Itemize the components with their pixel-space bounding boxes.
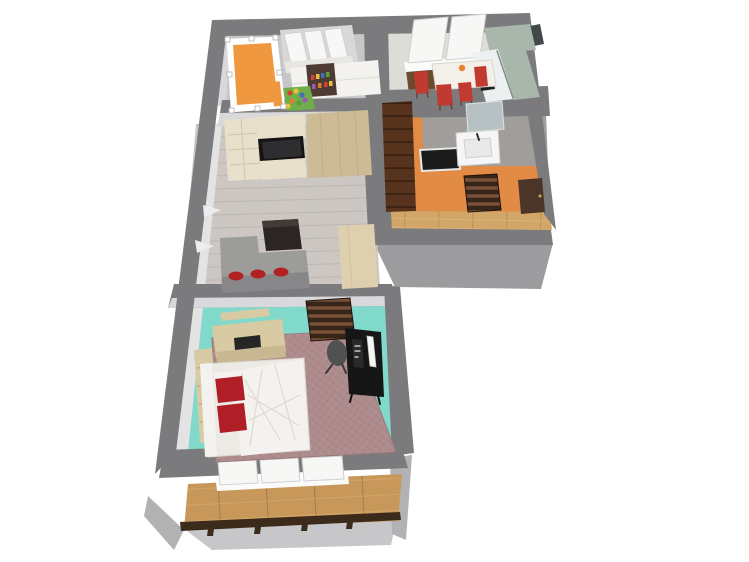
handle-s[interactable] [255, 106, 260, 111]
pc-tower[interactable] [352, 339, 364, 368]
toy-block [318, 83, 322, 88]
side-table[interactable] [338, 224, 378, 289]
handle-e[interactable] [277, 70, 282, 75]
bathtub[interactable] [420, 148, 460, 171]
dining-chair-3[interactable] [458, 82, 473, 102]
railing-post-2 [254, 527, 261, 534]
bed-pillow-2 [217, 403, 247, 433]
balcony-left-face [144, 496, 184, 550]
toy [287, 90, 292, 95]
hall-doormat[interactable] [464, 174, 501, 212]
toy-block [324, 82, 328, 87]
washbasin-bowl [464, 138, 492, 158]
handle-w[interactable] [227, 72, 232, 77]
dining-chair-4[interactable] [474, 66, 488, 87]
railing-post-1 [207, 529, 214, 536]
dining-chair-1[interactable] [414, 71, 429, 94]
handle-n[interactable] [249, 36, 254, 41]
railing-post-3 [301, 524, 308, 531]
floorplan-canvas[interactable] [0, 0, 749, 562]
wall-living-bedroom-face [168, 296, 396, 308]
toy-block [326, 72, 330, 77]
balcony-window-3[interactable] [302, 456, 344, 481]
handle-nw[interactable] [225, 37, 230, 42]
tv-screen [262, 139, 302, 159]
media-unit-lower-shelf [260, 158, 307, 180]
toy-block [311, 75, 315, 80]
south-wall-face [374, 243, 553, 289]
floorplan-page [0, 0, 749, 562]
kids-bed-mattress[interactable] [233, 43, 278, 105]
toy [302, 97, 307, 102]
dining-chair-2[interactable] [436, 84, 453, 106]
toy-block [329, 81, 333, 86]
toy [299, 92, 304, 97]
hallway-floor[interactable] [378, 211, 552, 230]
sofa-cushion-3 [274, 268, 289, 277]
bed-duvet [234, 359, 309, 456]
mirror[interactable] [466, 101, 504, 132]
sofa-cushion-1 [229, 272, 244, 281]
handle-sw[interactable] [229, 108, 234, 113]
balcony-window-1[interactable] [218, 460, 258, 485]
south-wall-top [370, 228, 553, 245]
balcony-window-2[interactable] [260, 458, 300, 483]
handle-ne[interactable] [273, 35, 278, 40]
handle-se[interactable] [281, 104, 286, 109]
toy [289, 98, 294, 103]
toy-block [312, 84, 316, 89]
toy-block [316, 74, 320, 79]
desk[interactable] [345, 328, 384, 397]
toy [293, 88, 298, 93]
kitchen-window-1[interactable] [408, 17, 448, 63]
toy-block [321, 73, 325, 78]
railing-post-4 [346, 522, 353, 529]
toy [296, 100, 301, 105]
door-knob [539, 195, 542, 198]
table-flowers[interactable] [459, 65, 465, 71]
hall-wardrobe-cabinet[interactable] [382, 101, 416, 212]
sofa-cushion-2 [251, 270, 266, 279]
